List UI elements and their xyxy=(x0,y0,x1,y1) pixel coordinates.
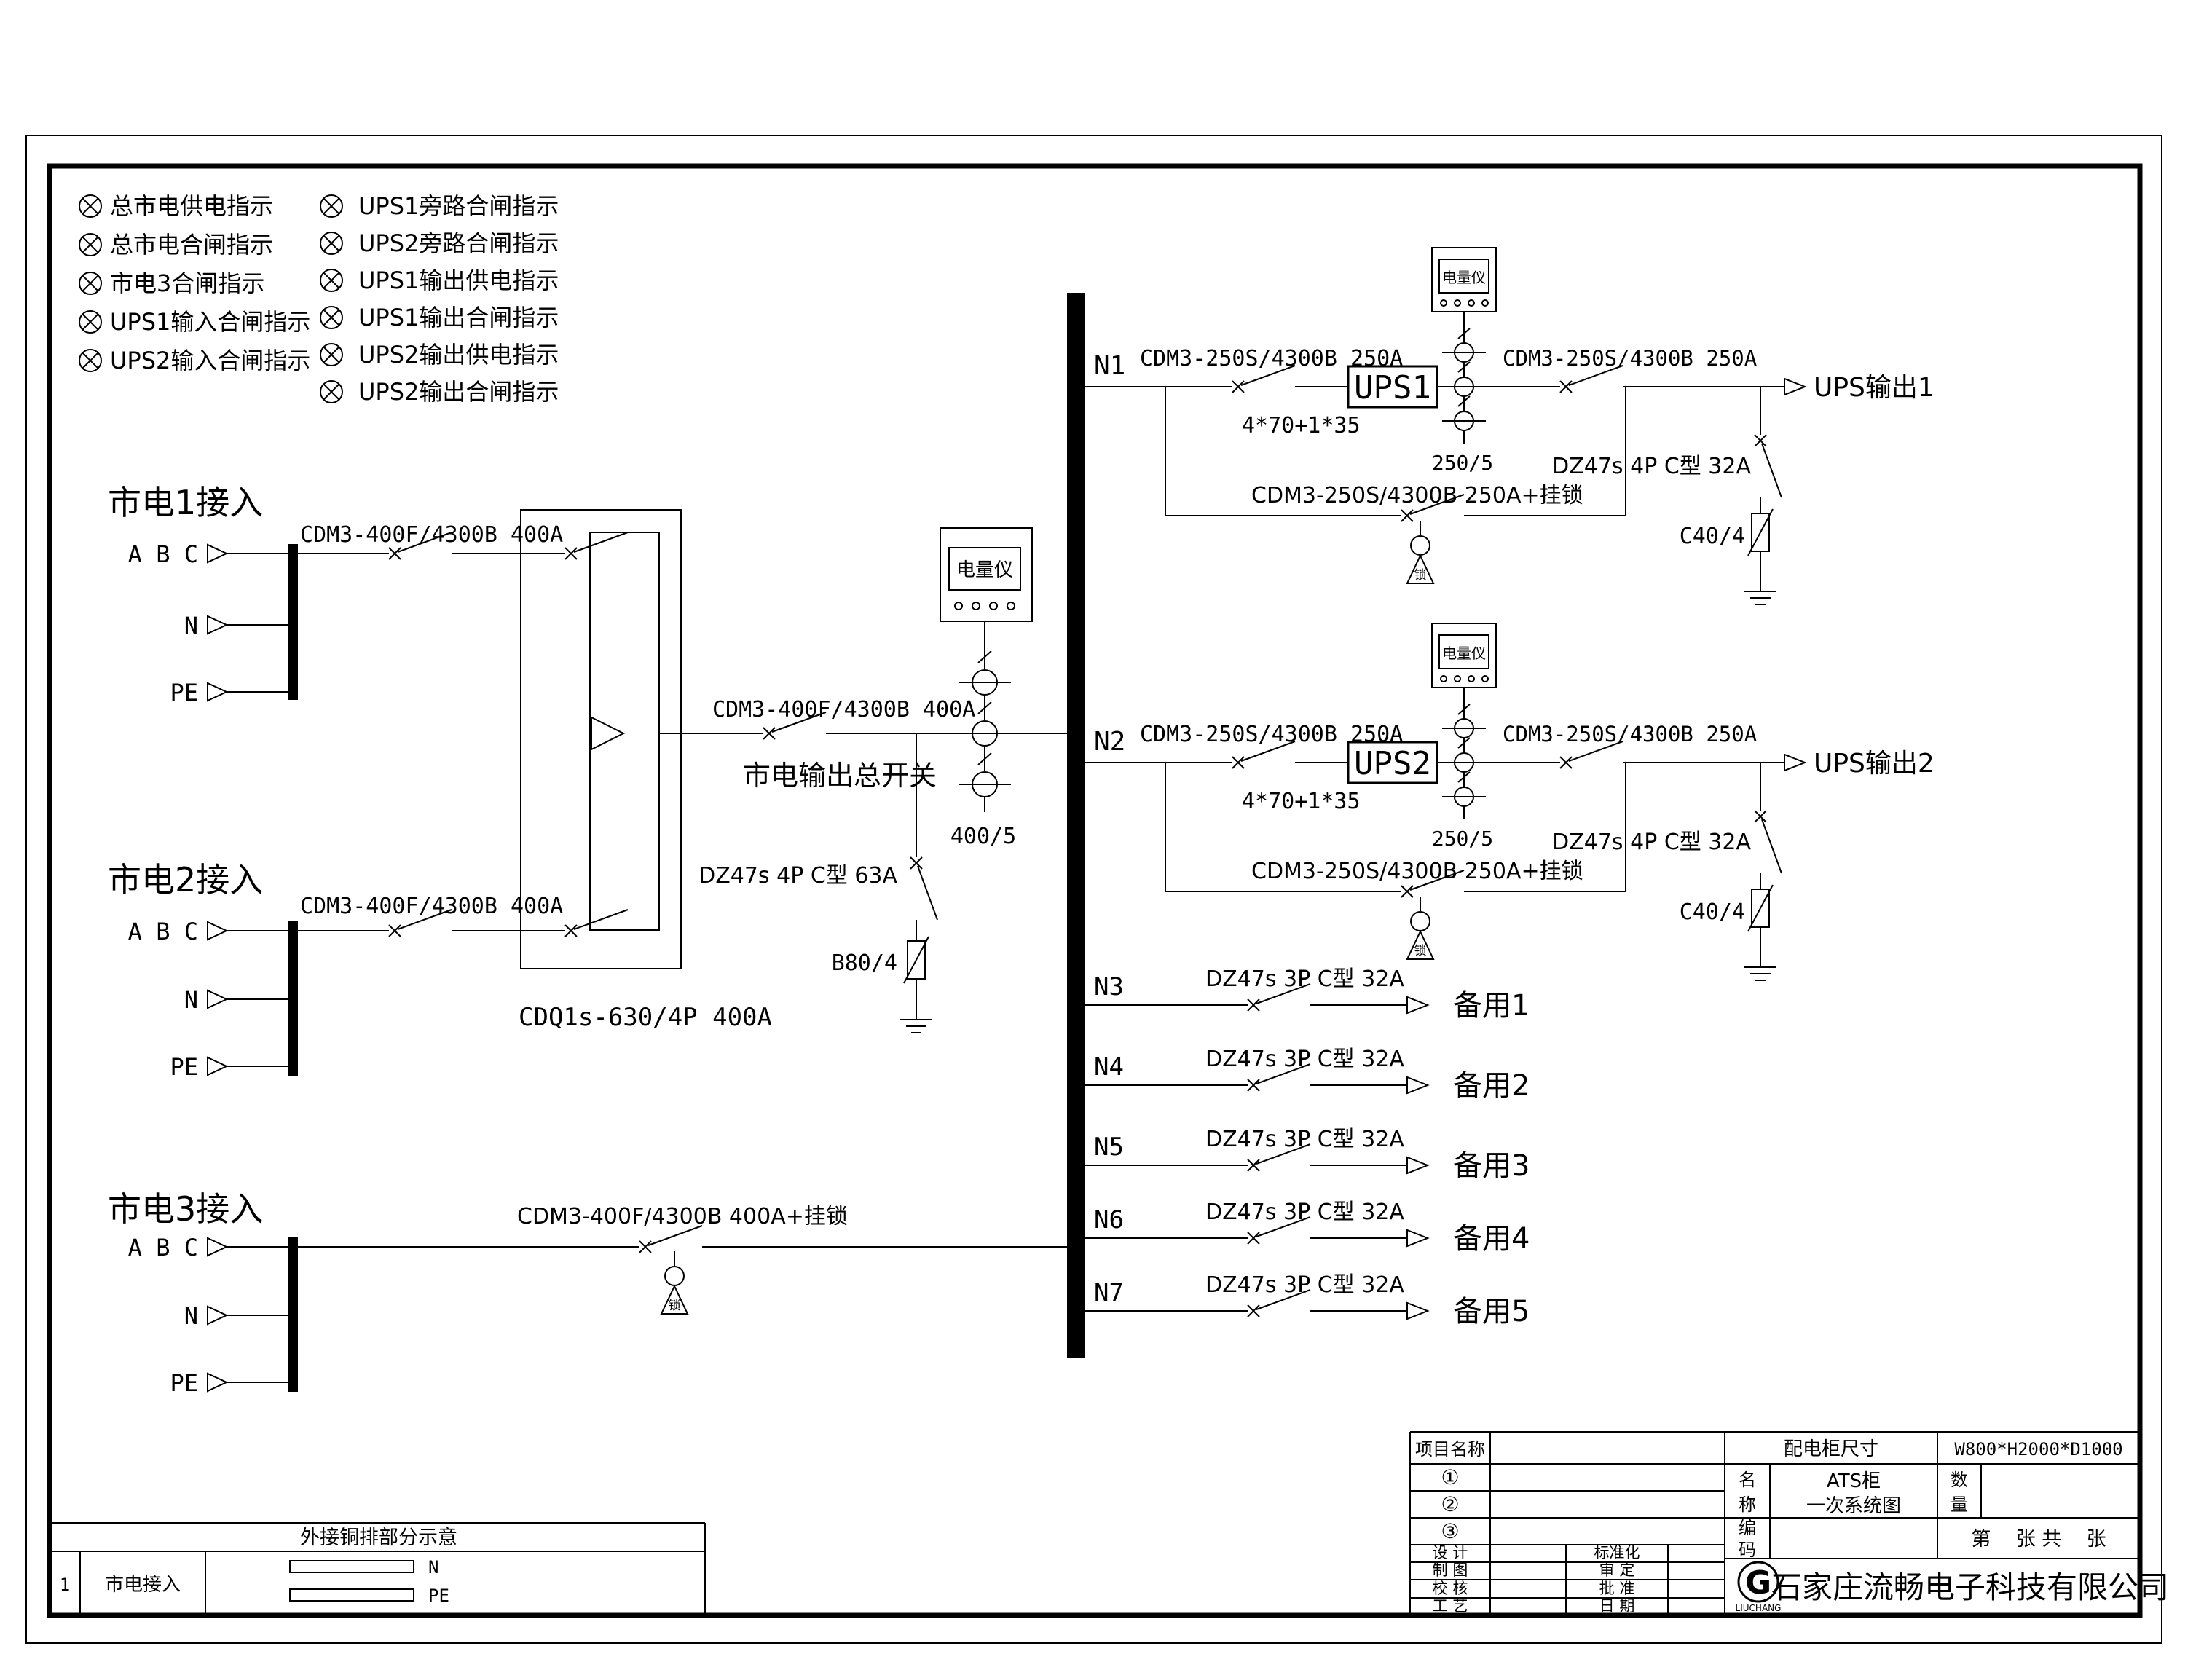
output-arrow-icon xyxy=(1407,1077,1428,1093)
standardization-label: 标准化 xyxy=(1594,1544,1640,1561)
breaker-label: CDM3-400F/4300B 400A xyxy=(300,894,563,919)
ups-label: UPS1 xyxy=(1354,369,1431,406)
feeder-id: N1 xyxy=(1094,351,1125,381)
current-transformers-icon xyxy=(1442,701,1486,819)
spd-label: B80/4 xyxy=(832,950,897,976)
spd-label: C40/4 xyxy=(1680,524,1745,549)
terminal-label-abc: A B C xyxy=(128,540,198,568)
meter-button-icon xyxy=(972,602,980,610)
spd-breaker-icon xyxy=(910,857,937,920)
legend-item: 总市电合闸指示 xyxy=(110,231,273,259)
row-marker-2: ② xyxy=(1441,1492,1459,1516)
terminal-label-abc: A B C xyxy=(128,918,198,945)
table-title: 外接铜排部分示意 xyxy=(300,1527,457,1549)
output-breaker-label: CDM3-250S/4300B 250A xyxy=(1503,346,1757,371)
output-breaker-label: CDM3-250S/4300B 250A xyxy=(1503,722,1757,747)
copper-bar-n xyxy=(290,1561,414,1572)
row-marker-1: ① xyxy=(1441,1465,1459,1489)
feeder-id: N2 xyxy=(1094,727,1125,757)
review-label: 审 定 xyxy=(1599,1561,1635,1579)
meter-button-icon xyxy=(955,602,962,610)
breaker-label: DZ47s 3P C型 32A xyxy=(1205,1200,1404,1225)
spd-breaker-label: DZ47s 4P C型 63A xyxy=(698,863,897,889)
legend-item: 市电3合闸指示 xyxy=(110,269,264,297)
input-busbar xyxy=(288,922,297,1075)
title-block: 项目名称 配电柜尺寸 W800*H2000*D1000 ① ② ③ 名 称 AT… xyxy=(1410,1432,2169,1615)
distribution-busbar xyxy=(1068,294,1084,1357)
name-label-char1: 名 xyxy=(1739,1470,1756,1490)
input-busbar xyxy=(288,545,297,699)
output-label: 备用4 xyxy=(1453,1222,1530,1256)
legend-item: UPS1旁路合闸指示 xyxy=(358,192,559,220)
draft-label: 制 图 xyxy=(1433,1561,1468,1579)
ats-output-triangle-icon xyxy=(591,717,623,749)
output-arrow-icon xyxy=(1407,1230,1428,1246)
ground-icon xyxy=(900,1020,932,1033)
spd-label: C40/4 xyxy=(1680,899,1745,925)
cabinet-size-label: 配电柜尺寸 xyxy=(1784,1438,1878,1460)
ats-switch: CDQ1s-630/4P 400A xyxy=(519,510,772,1032)
main-breaker-label: CDM3-400F/4300B 400A xyxy=(712,697,975,722)
qty-label-char1: 数 xyxy=(1951,1470,1968,1490)
copper-bar-pe xyxy=(290,1589,414,1601)
lamp-icon xyxy=(79,195,101,217)
source-title: 市电3接入 xyxy=(108,1189,263,1229)
output-label: 备用5 xyxy=(1453,1295,1530,1328)
row-marker-3: ③ xyxy=(1441,1519,1459,1543)
current-transformers-icon xyxy=(1442,325,1486,444)
terminal-label-pe: PE xyxy=(170,1053,198,1081)
meter-label: 电量仪 xyxy=(1442,269,1486,286)
ats-model-label: CDQ1s-630/4P 400A xyxy=(519,1003,772,1032)
terminal-label-n: N xyxy=(184,1302,198,1330)
spd-breaker-label: DZ47s 4P C型 32A xyxy=(1552,454,1751,479)
terminal-arrow-icon xyxy=(208,545,227,562)
main-output-line: CDM3-400F/4300B 400A 市电输出总开关 电量仪 400/5 D… xyxy=(659,528,1068,1033)
feeder-id: N5 xyxy=(1094,1133,1124,1162)
breaker-label: CDM3-400F/4300B 400A xyxy=(300,522,563,548)
feeder-n6: N6 DZ47s 3P C型 32A 备用4 xyxy=(1084,1200,1530,1256)
spd-breaker-icon xyxy=(1755,435,1782,497)
check-label: 校 核 xyxy=(1433,1580,1468,1597)
legend-item: UPS2输入合闸指示 xyxy=(110,347,310,374)
terminal-label-pe: PE xyxy=(170,679,198,706)
feeder-n1: N1 CDM3-250S/4300B 250A 4*70+1*35 UPS1 电… xyxy=(1084,248,1934,604)
padlock-char: 锁 xyxy=(1414,944,1427,958)
legend-item: UPS1输出合闸指示 xyxy=(358,304,559,331)
terminal-arrow-icon xyxy=(208,1374,227,1391)
cable-label: 4*70+1*35 xyxy=(1242,789,1361,814)
padlocked-breaker-icon xyxy=(639,1226,702,1253)
lamp-icon xyxy=(320,195,342,217)
lamp-icon xyxy=(79,272,101,294)
spd-breaker-icon xyxy=(1755,811,1782,873)
output-label: 备用2 xyxy=(1453,1069,1530,1103)
ct-ratio-label: 400/5 xyxy=(950,824,1016,849)
padlock-char: 锁 xyxy=(669,1299,681,1313)
output-arrow-icon xyxy=(1407,1157,1428,1173)
terminal-label-n: N xyxy=(184,986,198,1014)
bar-label-pe: PE xyxy=(428,1586,449,1606)
feeder-n4: N4 DZ47s 3P C型 32A 备用2 xyxy=(1084,1047,1530,1103)
lamp-icon xyxy=(320,269,342,291)
meter-label: 电量仪 xyxy=(1442,645,1486,662)
meter-button-icon xyxy=(1482,300,1488,306)
indicator-legend: 总市电供电指示 总市电合闸指示 市电3合闸指示 UPS1输入合闸指示 UPS2输… xyxy=(79,192,559,406)
date-label: 日 期 xyxy=(1599,1597,1635,1615)
meter-button-icon xyxy=(1482,676,1488,682)
terminal-arrow-icon xyxy=(208,922,227,940)
lamp-icon xyxy=(320,344,342,366)
bypass-breaker-label: CDM3-250S/4300B 250A+挂锁 xyxy=(1251,859,1583,884)
company-logo-letter: G xyxy=(1745,1564,1771,1602)
main-switch-name: 市电输出总开关 xyxy=(743,760,937,792)
lamp-icon xyxy=(79,234,101,256)
padlock-char: 锁 xyxy=(1414,568,1427,583)
lamp-icon xyxy=(320,232,342,254)
breaker-label: DZ47s 3P C型 32A xyxy=(1205,1047,1404,1072)
meter-button-icon xyxy=(1007,602,1015,610)
terminal-arrow-icon xyxy=(208,1057,227,1075)
legend-item: UPS2输出供电指示 xyxy=(358,341,559,369)
terminal-arrow-icon xyxy=(208,1307,227,1324)
legend-item: 总市电供电指示 xyxy=(110,192,273,220)
drawing-sheet: 总市电供电指示 总市电合闸指示 市电3合闸指示 UPS1输入合闸指示 UPS2输… xyxy=(0,0,2212,1678)
ct-ratio-label: 250/5 xyxy=(1432,451,1493,475)
input-busbar xyxy=(288,1238,297,1391)
meter-button-icon xyxy=(1441,300,1447,306)
drawing-name-line2: 一次系统图 xyxy=(1806,1495,1901,1517)
terminal-arrow-icon xyxy=(208,616,227,634)
output-arrow-icon xyxy=(1407,997,1428,1013)
row-label: 市电接入 xyxy=(105,1574,181,1596)
meter-button-icon xyxy=(1441,676,1447,682)
mains-source-2: 市电2接入 A B C N PE CDM3-400F/4300B 400A xyxy=(108,860,565,1081)
terminal-arrow-icon xyxy=(208,1238,227,1256)
schematic-canvas: 总市电供电指示 总市电合闸指示 市电3合闸指示 UPS1输入合闸指示 UPS2输… xyxy=(0,0,2212,1678)
ground-icon xyxy=(1744,967,1776,980)
feeder-n3: N3 DZ47s 3P C型 32A 备用1 xyxy=(1084,966,1530,1023)
output-arrow-icon xyxy=(1784,755,1805,771)
output-arrow-icon xyxy=(1784,379,1805,395)
lamp-icon xyxy=(79,350,101,371)
lamp-icon xyxy=(79,311,101,333)
lamp-icon xyxy=(320,307,342,328)
row-number: 1 xyxy=(60,1575,70,1595)
meter-button-icon xyxy=(1468,676,1474,682)
feeder-id: N4 xyxy=(1094,1052,1124,1082)
current-transformers-icon xyxy=(959,650,1011,812)
design-label: 设 计 xyxy=(1433,1544,1468,1561)
breaker-label: DZ47s 3P C型 32A xyxy=(1205,1127,1404,1152)
breaker-label: DZ47s 3P C型 32A xyxy=(1205,1272,1404,1298)
output-arrow-icon xyxy=(1407,1303,1428,1319)
mains-source-1: 市电1接入 A B C N PE CDM3-400F/4300B 400A xyxy=(108,483,565,706)
legend-item: UPS2旁路合闸指示 xyxy=(358,229,559,257)
source-title: 市电2接入 xyxy=(108,860,263,899)
bypass-breaker-label: CDM3-250S/4300B 250A+挂锁 xyxy=(1251,483,1583,508)
surge-arrester-icon xyxy=(904,937,929,983)
process-label: 工 艺 xyxy=(1433,1597,1468,1615)
legend-item: UPS1输入合闸指示 xyxy=(110,308,310,336)
breaker-label: DZ47s 3P C型 32A xyxy=(1205,966,1404,992)
ground-icon xyxy=(1744,591,1776,604)
qty-label-char2: 量 xyxy=(1951,1494,1968,1515)
feeder-id: N3 xyxy=(1094,972,1124,1001)
output-label: UPS输出1 xyxy=(1814,373,1934,403)
meter-button-icon xyxy=(1455,676,1460,682)
terminal-arrow-icon xyxy=(208,683,227,701)
surge-arrester-icon xyxy=(1748,885,1773,931)
meter-label: 电量仪 xyxy=(956,559,1013,581)
drawing-name-line1: ATS柜 xyxy=(1827,1470,1881,1492)
project-label: 项目名称 xyxy=(1415,1439,1485,1460)
feeder-n2: N2 CDM3-250S/4300B 250A 4*70+1*35 UPS2 电… xyxy=(1084,623,1934,980)
source-title: 市电1接入 xyxy=(108,483,263,522)
spd-breaker-label: DZ47s 4P C型 32A xyxy=(1552,830,1751,855)
feeder-n7: N7 DZ47s 3P C型 32A 备用5 xyxy=(1084,1272,1530,1328)
external-busbar-table: 外接铜排部分示意 1 市电接入 N PE xyxy=(50,1523,705,1615)
sheet-number-text: 第 张 共 张 xyxy=(1971,1528,2106,1551)
company-name: 石家庄流畅电子科技有限公司 xyxy=(1771,1569,2169,1605)
code-label-char2: 码 xyxy=(1739,1540,1756,1560)
ats-contact-bottom-icon xyxy=(565,910,628,937)
cabinet-size-value: W800*H2000*D1000 xyxy=(1954,1439,2122,1460)
approve-label: 批 准 xyxy=(1599,1580,1635,1597)
output-label: UPS输出2 xyxy=(1814,749,1934,779)
name-label-char2: 称 xyxy=(1739,1494,1756,1515)
output-label: 备用1 xyxy=(1453,989,1530,1023)
ats-contact-top-icon xyxy=(565,532,628,559)
feeder-n5: N5 DZ47s 3P C型 32A 备用3 xyxy=(1084,1127,1530,1183)
feeder-id: N6 xyxy=(1094,1205,1124,1234)
ups-label: UPS2 xyxy=(1354,745,1431,782)
feeder-id: N7 xyxy=(1094,1278,1124,1307)
lamp-icon xyxy=(320,381,342,403)
meter-button-icon xyxy=(990,602,997,610)
terminal-label-n: N xyxy=(184,612,198,639)
bar-label-n: N xyxy=(428,1557,438,1577)
breaker-label: CDM3-400F/4300B 400A+挂锁 xyxy=(517,1204,848,1229)
legend-item: UPS2输出合闸指示 xyxy=(358,378,559,406)
cable-label: 4*70+1*35 xyxy=(1242,413,1361,438)
meter-button-icon xyxy=(1455,300,1460,306)
mains-source-3: 市电3接入 A B C N PE CDM3-400F/4300B 400A+挂锁… xyxy=(108,1189,1068,1397)
terminal-label-abc: A B C xyxy=(128,1234,198,1261)
code-label-char1: 编 xyxy=(1739,1518,1756,1538)
terminal-label-pe: PE xyxy=(170,1369,198,1397)
terminal-arrow-icon xyxy=(208,990,227,1008)
surge-arrester-icon xyxy=(1748,509,1773,556)
legend-item: UPS1输出供电指示 xyxy=(358,267,559,294)
ct-ratio-label: 250/5 xyxy=(1432,827,1493,851)
output-label: 备用3 xyxy=(1453,1149,1530,1183)
meter-button-icon xyxy=(1468,300,1474,306)
